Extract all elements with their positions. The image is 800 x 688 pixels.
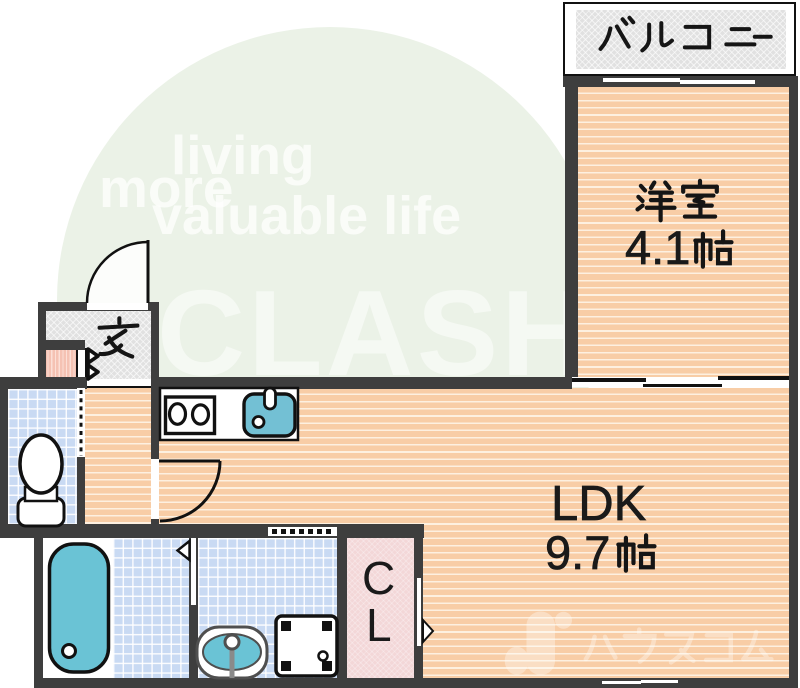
svg-text:LDK: LDK	[551, 477, 647, 531]
svg-text:C: C	[362, 552, 395, 604]
svg-text:9.7: 9.7	[545, 526, 610, 579]
svg-text:L: L	[366, 599, 392, 651]
svg-text:4.1: 4.1	[625, 221, 690, 274]
